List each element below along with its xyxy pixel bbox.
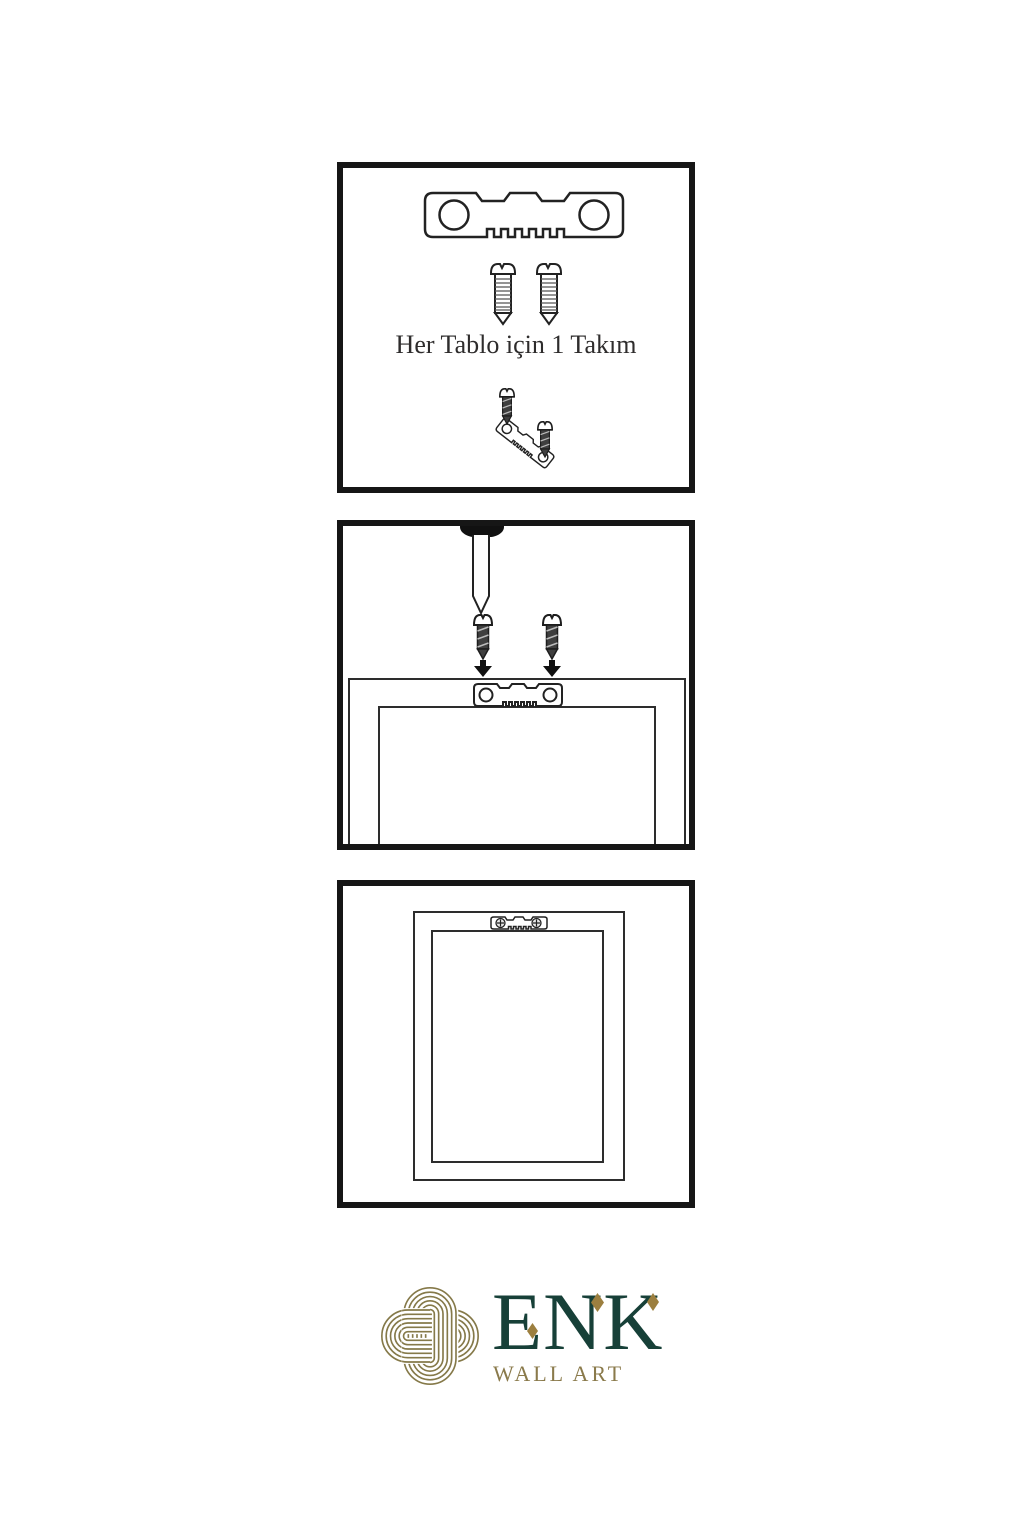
- frame-back-icon: [414, 912, 624, 1180]
- step-panel-result: [337, 880, 695, 1208]
- dark-screw-icon: [543, 615, 561, 659]
- sawtooth-hanger-icon: [474, 684, 562, 706]
- kit-quantity-label: Her Tablo için 1 Takım: [343, 328, 689, 362]
- step-panel-install: [337, 520, 695, 850]
- knot-loop-b: [404, 1288, 456, 1384]
- arrow-down-icon: [543, 660, 561, 677]
- angled-hanger-with-screws-icon: [495, 389, 555, 469]
- brand-logo: ENK WALL ART: [375, 1275, 675, 1407]
- screw-icon: [537, 264, 561, 324]
- arrow-down-icon: [474, 660, 492, 677]
- mounted-frame-illustration: [343, 886, 689, 1202]
- brand-name: ENK: [492, 1281, 664, 1363]
- knot-loop-a: [382, 1310, 478, 1362]
- sawtooth-hanger-icon: [425, 193, 623, 237]
- screwdriver-icon: [460, 526, 504, 613]
- brand-tagline: WALL ART: [493, 1362, 624, 1386]
- dark-screw-icon: [474, 615, 492, 659]
- screw-icon: [491, 264, 515, 324]
- install-screws-illustration: [343, 526, 689, 844]
- knot-logo-icon: [378, 1280, 482, 1392]
- mounted-sawtooth-hanger-icon: [491, 917, 547, 929]
- step-panel-kit: Her Tablo için 1 Takım: [337, 162, 695, 493]
